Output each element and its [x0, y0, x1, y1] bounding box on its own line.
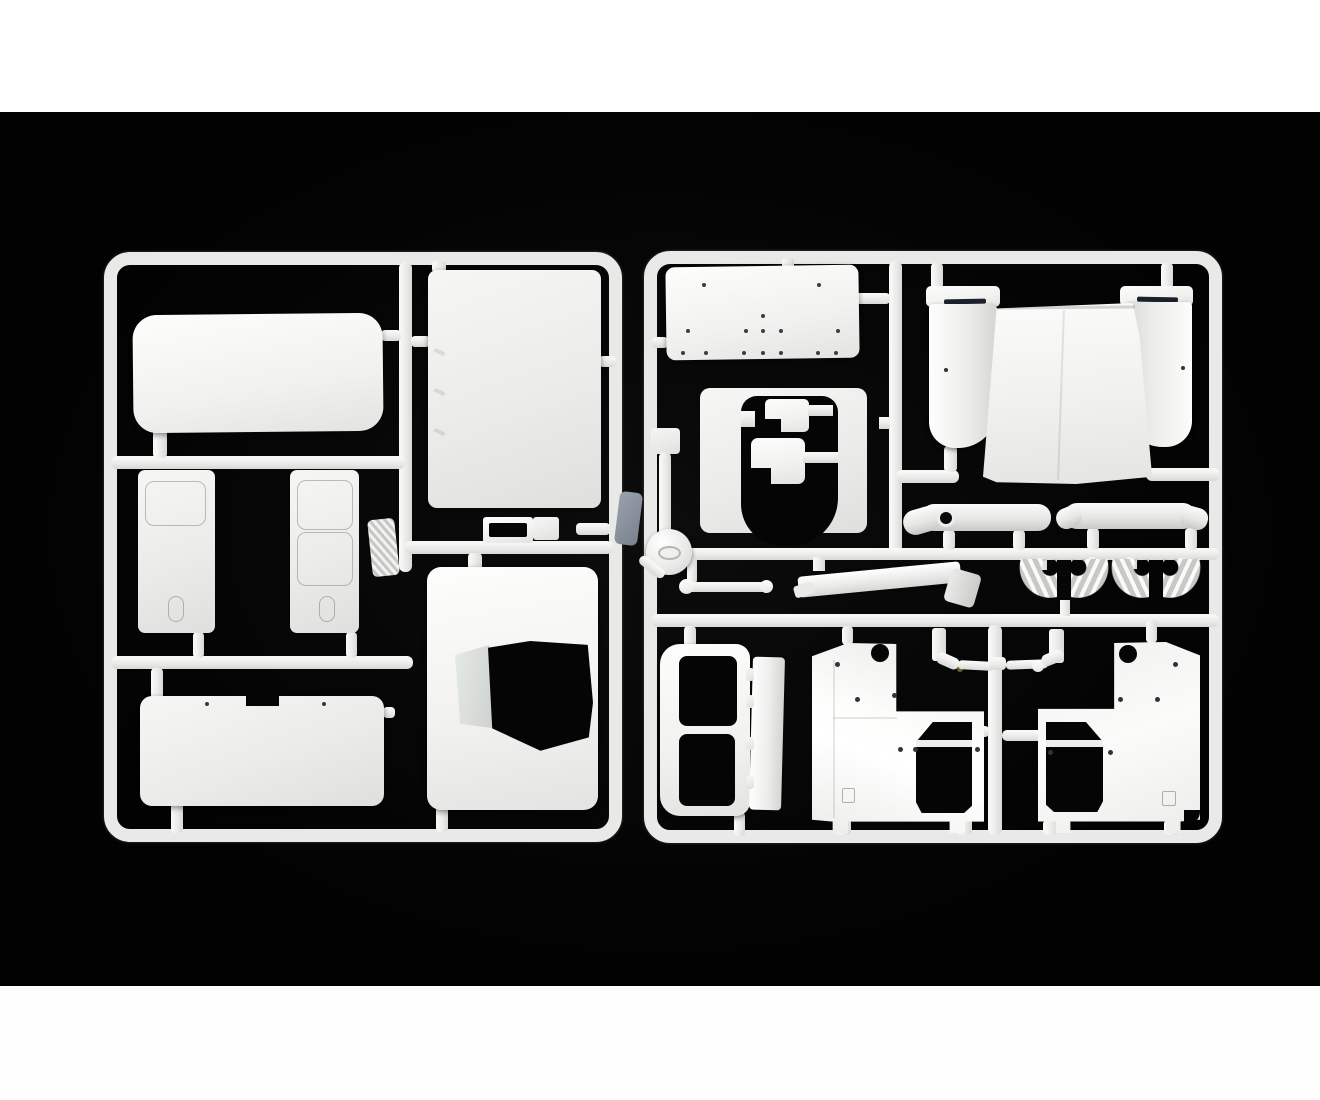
rivet-dots-dot: [836, 329, 840, 333]
sidepanelL-door-opening: [916, 722, 972, 813]
gate-pipeL-1: [943, 530, 955, 550]
deflector-right-pinhole-dot: [1181, 366, 1185, 370]
floor-panel-top-notch: [246, 696, 279, 706]
rivet-dots-dot: [744, 329, 748, 333]
deflector-left-pinhole-dot: [944, 368, 948, 372]
part-intake-elbow-4: [1163, 559, 1201, 605]
white-margin-top: [0, 0, 1320, 112]
exhaust-pipe-left-bore: [937, 509, 955, 527]
rivet-dots-dot: [761, 329, 765, 333]
sidepanelR-foot-1: [1043, 820, 1058, 835]
gate-pipeL-2: [1013, 530, 1025, 550]
right-runner-panel-to-frame: [1146, 468, 1220, 481]
right-runner-vertical-main: [889, 261, 902, 560]
photo-canvas: [0, 0, 1320, 1100]
gate-floorpanel-right-nub: [383, 707, 395, 718]
gate-door-left-bottom: [193, 632, 204, 658]
part-wiper-rod: [683, 582, 768, 592]
rivet-dots-dot: [817, 283, 821, 287]
sidepanelL-window-sill: [916, 740, 972, 747]
window-frame-small-hole: [489, 523, 527, 537]
sidepanelR-window-sill: [1046, 740, 1103, 747]
gate-bracket-to-frame: [576, 523, 610, 535]
door-left-window-recess: [145, 481, 206, 526]
rivet-dots-dot: [761, 351, 765, 355]
part-small-bracket: [533, 517, 559, 540]
pedal-lower-notch: [751, 468, 771, 485]
pedal-lower-stem: [803, 452, 838, 463]
part-ribbed-grille: [367, 518, 400, 578]
gate-roofbox-right: [381, 330, 401, 341]
floor-panel-pinholes-dot: [322, 702, 326, 706]
sidepanelL-screw-holes-dot: [975, 747, 980, 752]
part-hinge-strip: [749, 657, 785, 811]
rivet-dots-dot: [681, 351, 685, 355]
sidepanelL-seam-vertical: [833, 660, 835, 818]
sidepanelL-screw-holes-dot: [898, 747, 903, 752]
sidepanelL-screw-holes-dot: [892, 693, 897, 698]
part-stack-bar: [659, 452, 671, 536]
part-sleeper-roof-box: [132, 313, 383, 434]
left-runner-vertical-divider: [399, 262, 412, 572]
sidepanelL-latch-recess: [842, 788, 855, 803]
part-clear-sliver: [614, 491, 643, 546]
sidepanelR-screw-holes-dot: [1173, 662, 1178, 667]
hinge-bump-3: [746, 737, 754, 750]
pedal-upper-notch: [765, 419, 781, 433]
gate-backwall-right: [599, 356, 616, 367]
link-lump-a: [990, 657, 1006, 670]
gate-visor-top: [813, 557, 825, 571]
gate-roofbox-bottom: [153, 429, 167, 458]
part-cab-rear-center-panel: [983, 303, 1153, 484]
horn-disc-boss: [658, 546, 681, 560]
door-window-frame-hole-upper: [679, 656, 737, 726]
sidepanelL-seam-horizontal: [833, 717, 897, 719]
door-right-recess-lower: [297, 532, 353, 586]
hinge-bump-1: [746, 668, 754, 681]
gate-pipeR-1: [1087, 528, 1099, 550]
rivet-dots-dot: [761, 314, 765, 318]
gate-floorpanel-bottom: [171, 803, 183, 833]
part-cab-back-wall: [428, 270, 601, 508]
gate-floorpanel-top: [151, 668, 163, 699]
hinge-bump-2: [746, 695, 754, 708]
part-riveted-roof-panel: [665, 265, 859, 361]
floor-panel-pinholes-dot: [205, 702, 209, 706]
part-intake-elbow-1: [1019, 559, 1057, 605]
sidepanelL-screw-holes-dot: [913, 747, 918, 752]
rivet-dots-dot: [704, 351, 708, 355]
rivet-dots-dot: [834, 351, 838, 355]
wiper-rod-ball-right: [760, 580, 773, 593]
sidepanelL-screw-holes-dot: [855, 697, 860, 702]
right-runner-mid-lower: [652, 614, 1219, 627]
wiper-rod-ball-left: [679, 579, 694, 594]
cabfront-recess-shade: [455, 645, 492, 728]
part-floor-panel: [140, 696, 384, 806]
left-runner-under-roofbox: [111, 456, 405, 469]
gate-sidepanelR-top: [1146, 620, 1157, 643]
part-intake-elbow-2: [1071, 559, 1109, 605]
white-margin-bottom: [0, 986, 1320, 1100]
sidepanelR-screw-holes-dot: [1048, 750, 1053, 755]
door-right-handle-slot: [319, 596, 335, 622]
link-rod-a: [958, 660, 994, 671]
part-stack-pad: [651, 428, 680, 454]
door-window-frame-hole-lower: [679, 734, 735, 806]
gate-pipeR-2: [1185, 528, 1197, 550]
gate-door-right-bottom: [346, 632, 357, 658]
gate-rivetpanel-right: [856, 293, 890, 304]
rivet-dots-dot: [742, 351, 746, 355]
gate-deflectorL-bottom: [944, 446, 957, 472]
hinge-bump-4: [746, 776, 754, 789]
rivet-dots-dot: [816, 351, 820, 355]
rivet-dots-dot: [779, 329, 783, 333]
sidepanelR-latch-recess: [1162, 791, 1176, 806]
sidepanelR-screw-holes-dot: [1155, 697, 1160, 702]
door-left-handle-slot: [168, 596, 184, 622]
door-right-recess-upper: [297, 480, 353, 530]
gate-sidepanelL-top: [842, 626, 853, 645]
sidepanelR-screw-holes-dot: [1118, 697, 1123, 702]
rivet-dots-dot: [686, 329, 690, 333]
part-exhaust-pipe-right: [1064, 503, 1196, 529]
sidepanelR-round-hole: [1119, 645, 1137, 663]
gate-pedalunit-right: [879, 417, 890, 429]
sidepanelR-screw-holes-dot: [1108, 750, 1113, 755]
rivet-dots-dot: [779, 351, 783, 355]
rivet-dots-dot: [702, 283, 706, 287]
sidepanelR-door-opening: [1046, 722, 1103, 812]
sprue-photo-area: [0, 112, 1320, 986]
gate-elbow-mid-down: [1060, 600, 1070, 616]
sidepanelL-round-hole: [871, 644, 889, 662]
pedal-upper-stem: [808, 405, 833, 416]
part-intake-elbow-3: [1111, 559, 1149, 605]
pedal-wall-stub: [741, 411, 755, 427]
sidepanelL-screw-holes-dot: [835, 662, 840, 667]
